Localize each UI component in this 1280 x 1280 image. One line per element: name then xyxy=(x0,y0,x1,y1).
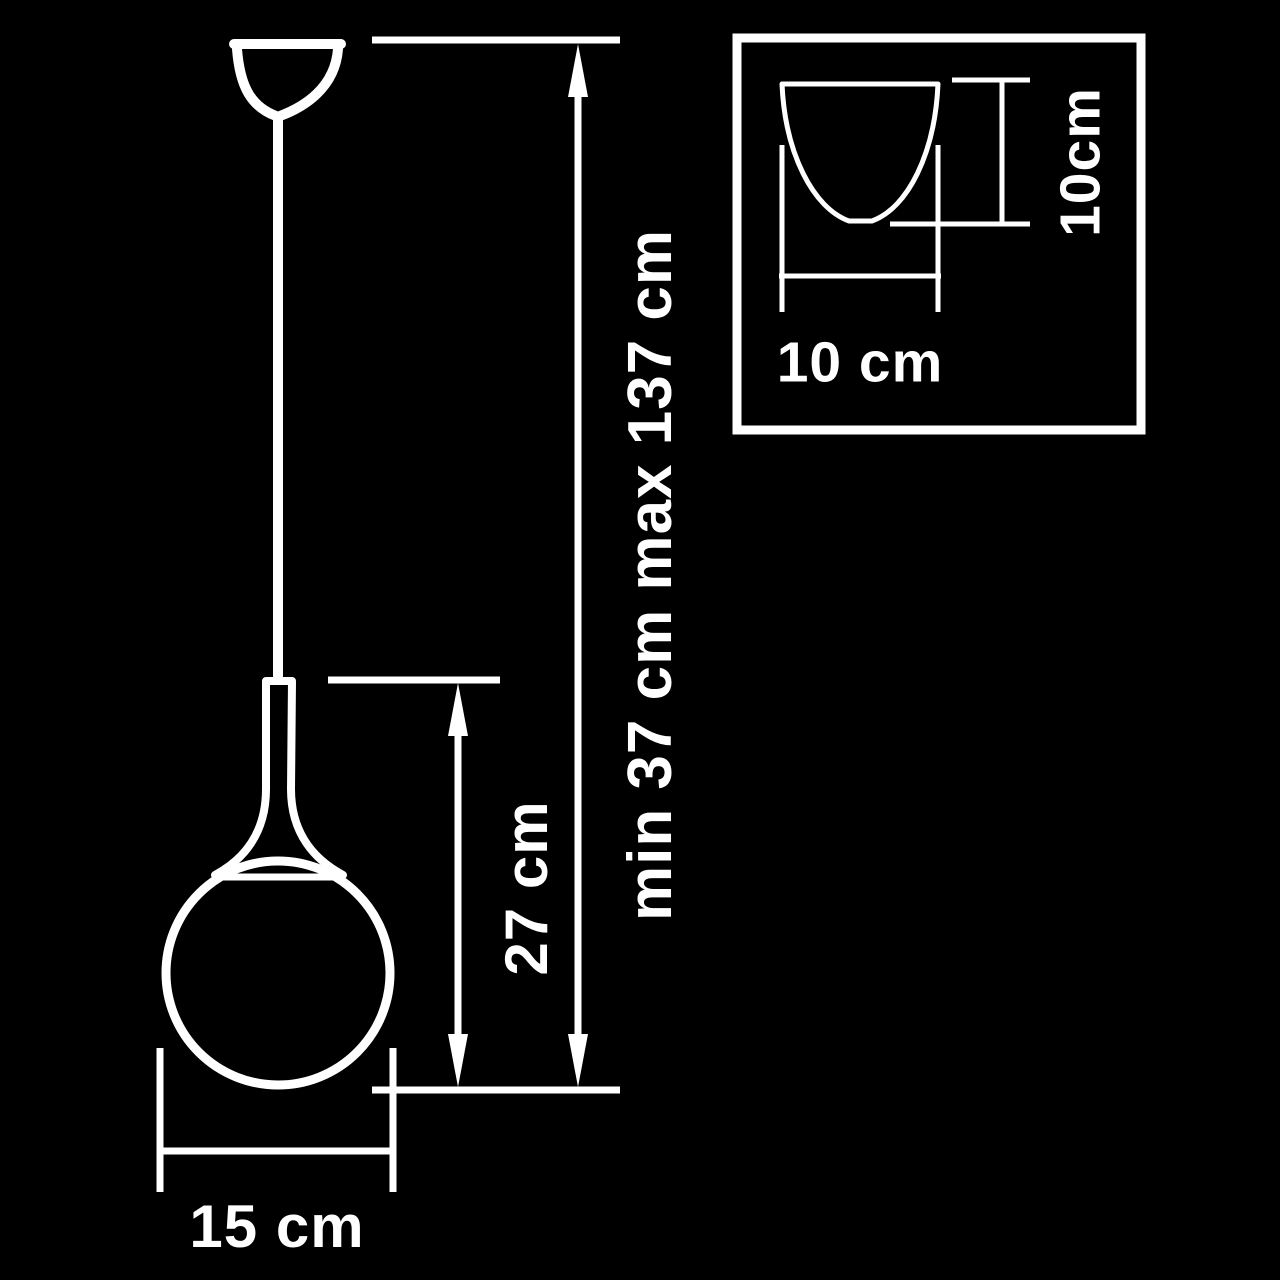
inset-canopy-height-label: 10cm xyxy=(1053,87,1110,237)
diameter-dimension xyxy=(157,1048,396,1192)
body-height-dimension xyxy=(328,680,500,1087)
inset-canopy-width-label: 10 cm xyxy=(777,335,944,392)
globe-shade-outline xyxy=(166,861,390,1085)
overall-height-arrowhead-up xyxy=(568,44,588,97)
dimension-diagram: min 37 cm max 137 cm 27 cm 15 cm 10 cm 1… xyxy=(0,0,1280,1280)
body-height-arrowhead-up xyxy=(448,683,468,736)
canopy-outline xyxy=(234,44,341,116)
inset-canopy-outline xyxy=(782,84,938,221)
shade-diameter-label: 15 cm xyxy=(189,1197,364,1257)
lamp-neck xyxy=(215,681,343,875)
inset-height-dimension xyxy=(890,80,1030,224)
overall-height-arrowhead-down xyxy=(568,1034,588,1087)
overall-height-label: min 37 cm max 137 cm xyxy=(620,229,682,921)
body-height-label: 27 cm xyxy=(497,800,557,975)
pendant-lamp-drawing xyxy=(166,44,390,1085)
body-height-arrowhead-down xyxy=(448,1034,468,1087)
